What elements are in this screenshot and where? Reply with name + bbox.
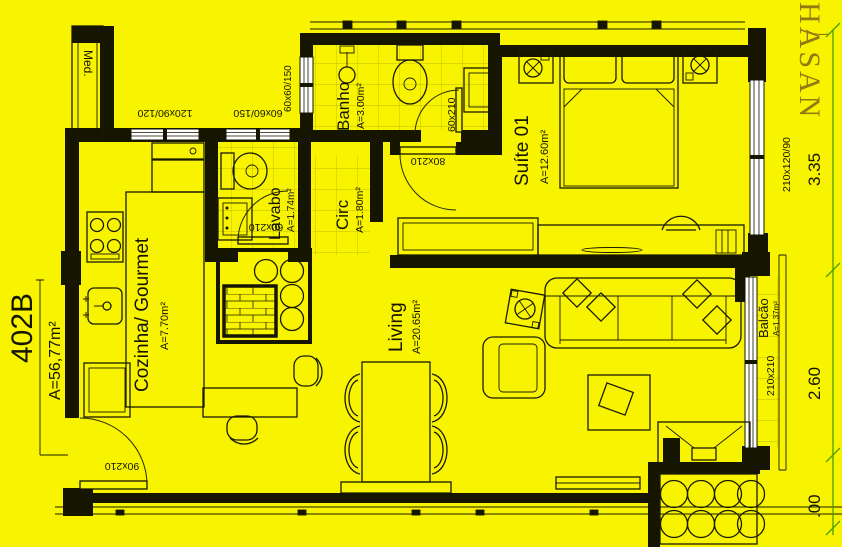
entry-door-label: 90x210 — [105, 460, 140, 472]
room-label-circ: Circ — [333, 199, 352, 230]
dimension-3-35: 3.35 — [805, 153, 824, 186]
kitchen-window-label: 120x90/120 — [137, 107, 192, 119]
room-area-balcao: A=1.37m² — [772, 301, 781, 336]
floor-plan-402b: Med. 120x90/120 60x60/150 60x60/150 210x… — [0, 0, 842, 547]
dimension-2-60: 2.60 — [805, 367, 824, 400]
shaft-label: Med. — [81, 50, 95, 77]
banho-door-label: 60x210 — [446, 97, 458, 132]
suite-door-label: 80x210 — [411, 155, 446, 167]
unit-area-label: A=56,77m² — [47, 321, 64, 400]
room-label-living: Living — [386, 302, 407, 352]
room-area-banho: A=3.00m² — [355, 83, 367, 129]
room-label-cozinha: Cozinha/ Gourmet — [132, 237, 153, 392]
room-label-balcao: Balcão — [756, 298, 771, 338]
unit-label: 402B — [6, 293, 39, 363]
suite-window-label: 210x120/90 — [781, 137, 793, 192]
room-area-lavabo: A=1.74m² — [286, 188, 297, 232]
dimension-1-00: .00 — [805, 494, 824, 518]
room-area-circ: A=1.80m² — [354, 187, 366, 233]
watermark: HASAN — [793, 2, 828, 120]
balcony-window-label: 210x210 — [765, 356, 777, 396]
room-label-suite: Suíte 01 — [512, 115, 533, 186]
watermark-text: HASAN — [793, 2, 826, 120]
floor-plan-svg: Med. 120x90/120 60x60/150 60x60/150 210x… — [0, 0, 842, 547]
room-label-lavabo: Lavabo — [267, 187, 284, 240]
room-label-banho: Banho — [334, 82, 353, 131]
banho-window-label: 60x60/150 — [283, 65, 294, 112]
room-area-living: A=20.65m² — [411, 300, 423, 354]
room-area-suite: A=12.60m² — [539, 130, 551, 184]
lavabo-window-label: 60x60/150 — [233, 107, 282, 119]
room-area-cozinha: A=7.70m² — [159, 302, 171, 350]
